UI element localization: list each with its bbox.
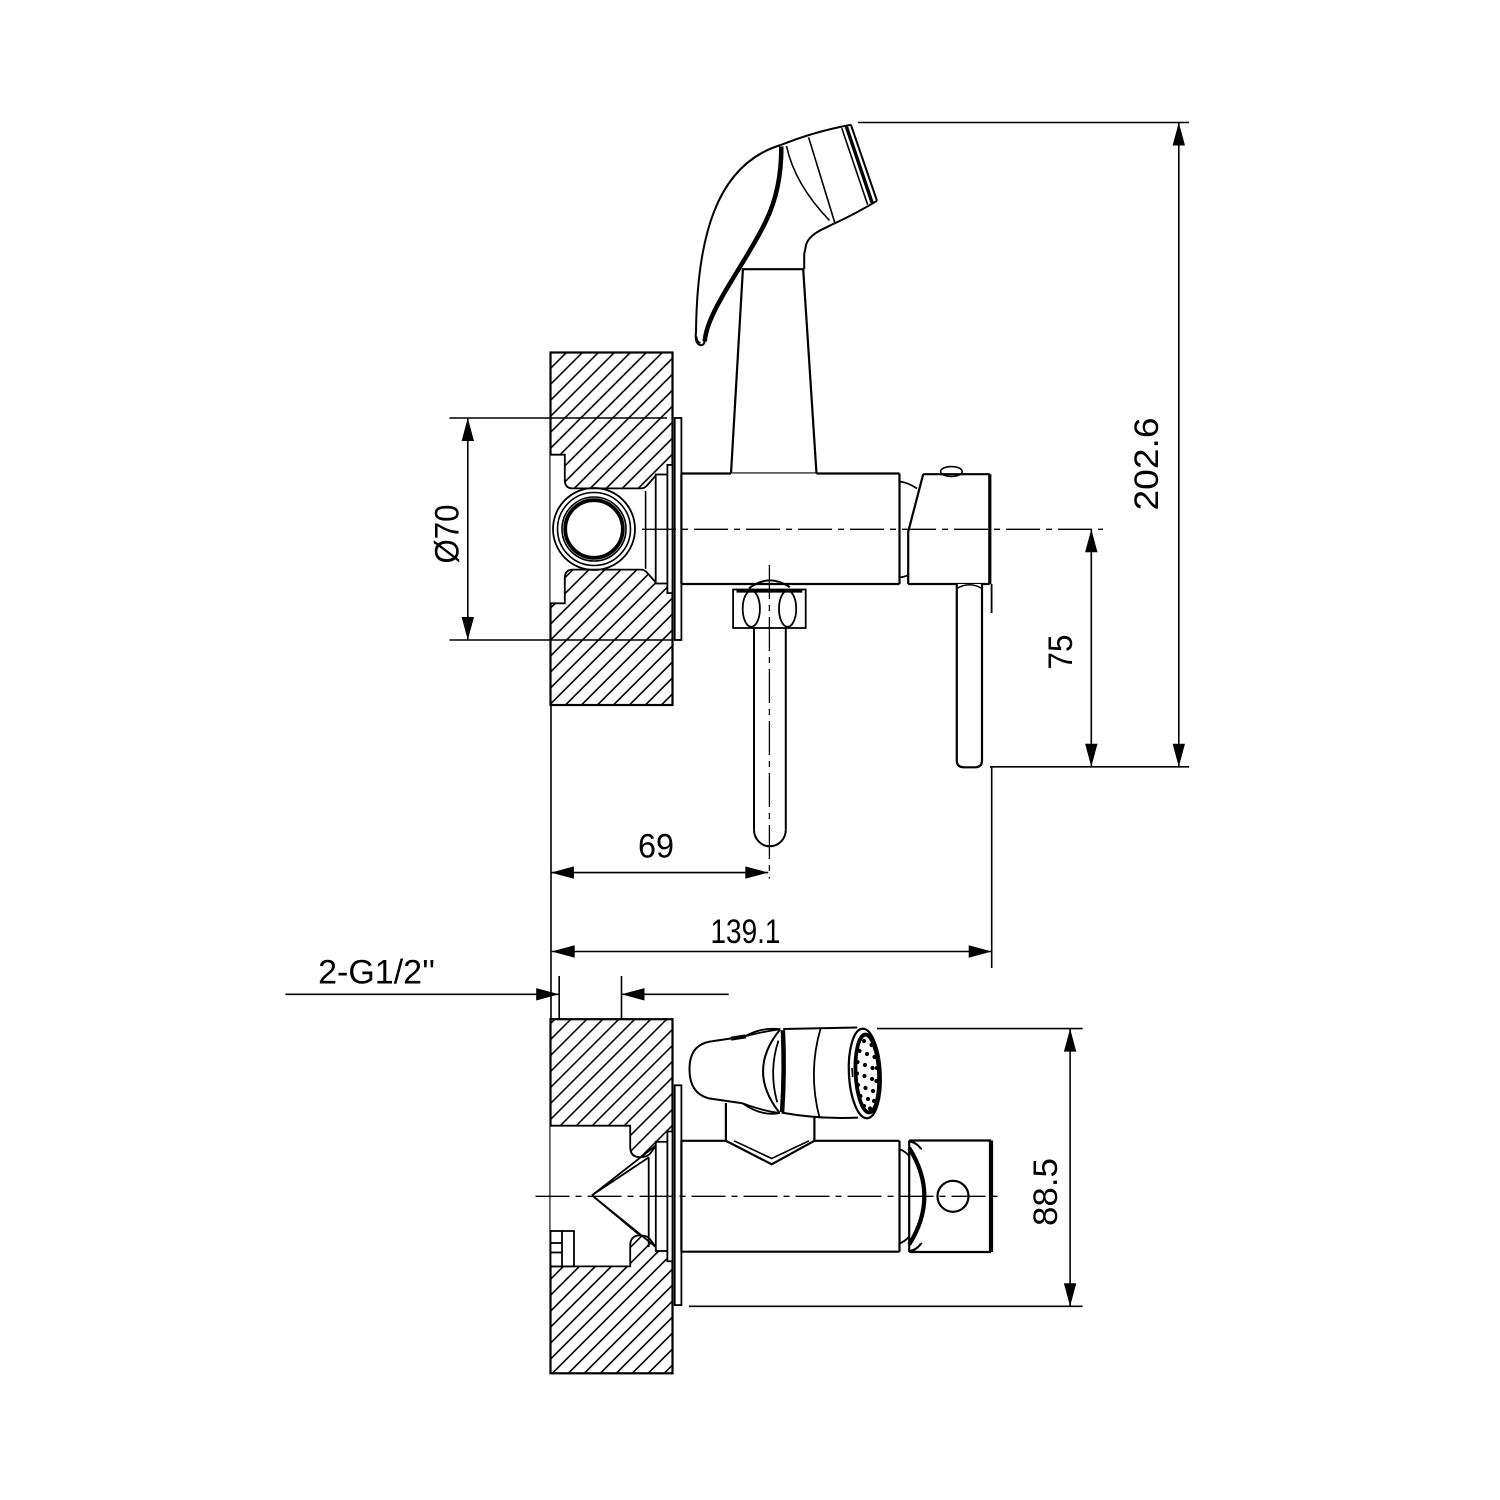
- svg-text:139.1: 139.1: [711, 913, 781, 951]
- svg-text:75: 75: [1042, 635, 1080, 670]
- svg-text:2-G1/2'': 2-G1/2'': [318, 954, 435, 992]
- svg-text:88.5: 88.5: [1027, 1158, 1065, 1226]
- svg-text:69: 69: [638, 828, 674, 866]
- svg-text:Ø70: Ø70: [429, 505, 467, 564]
- svg-text:202.6: 202.6: [1128, 418, 1166, 511]
